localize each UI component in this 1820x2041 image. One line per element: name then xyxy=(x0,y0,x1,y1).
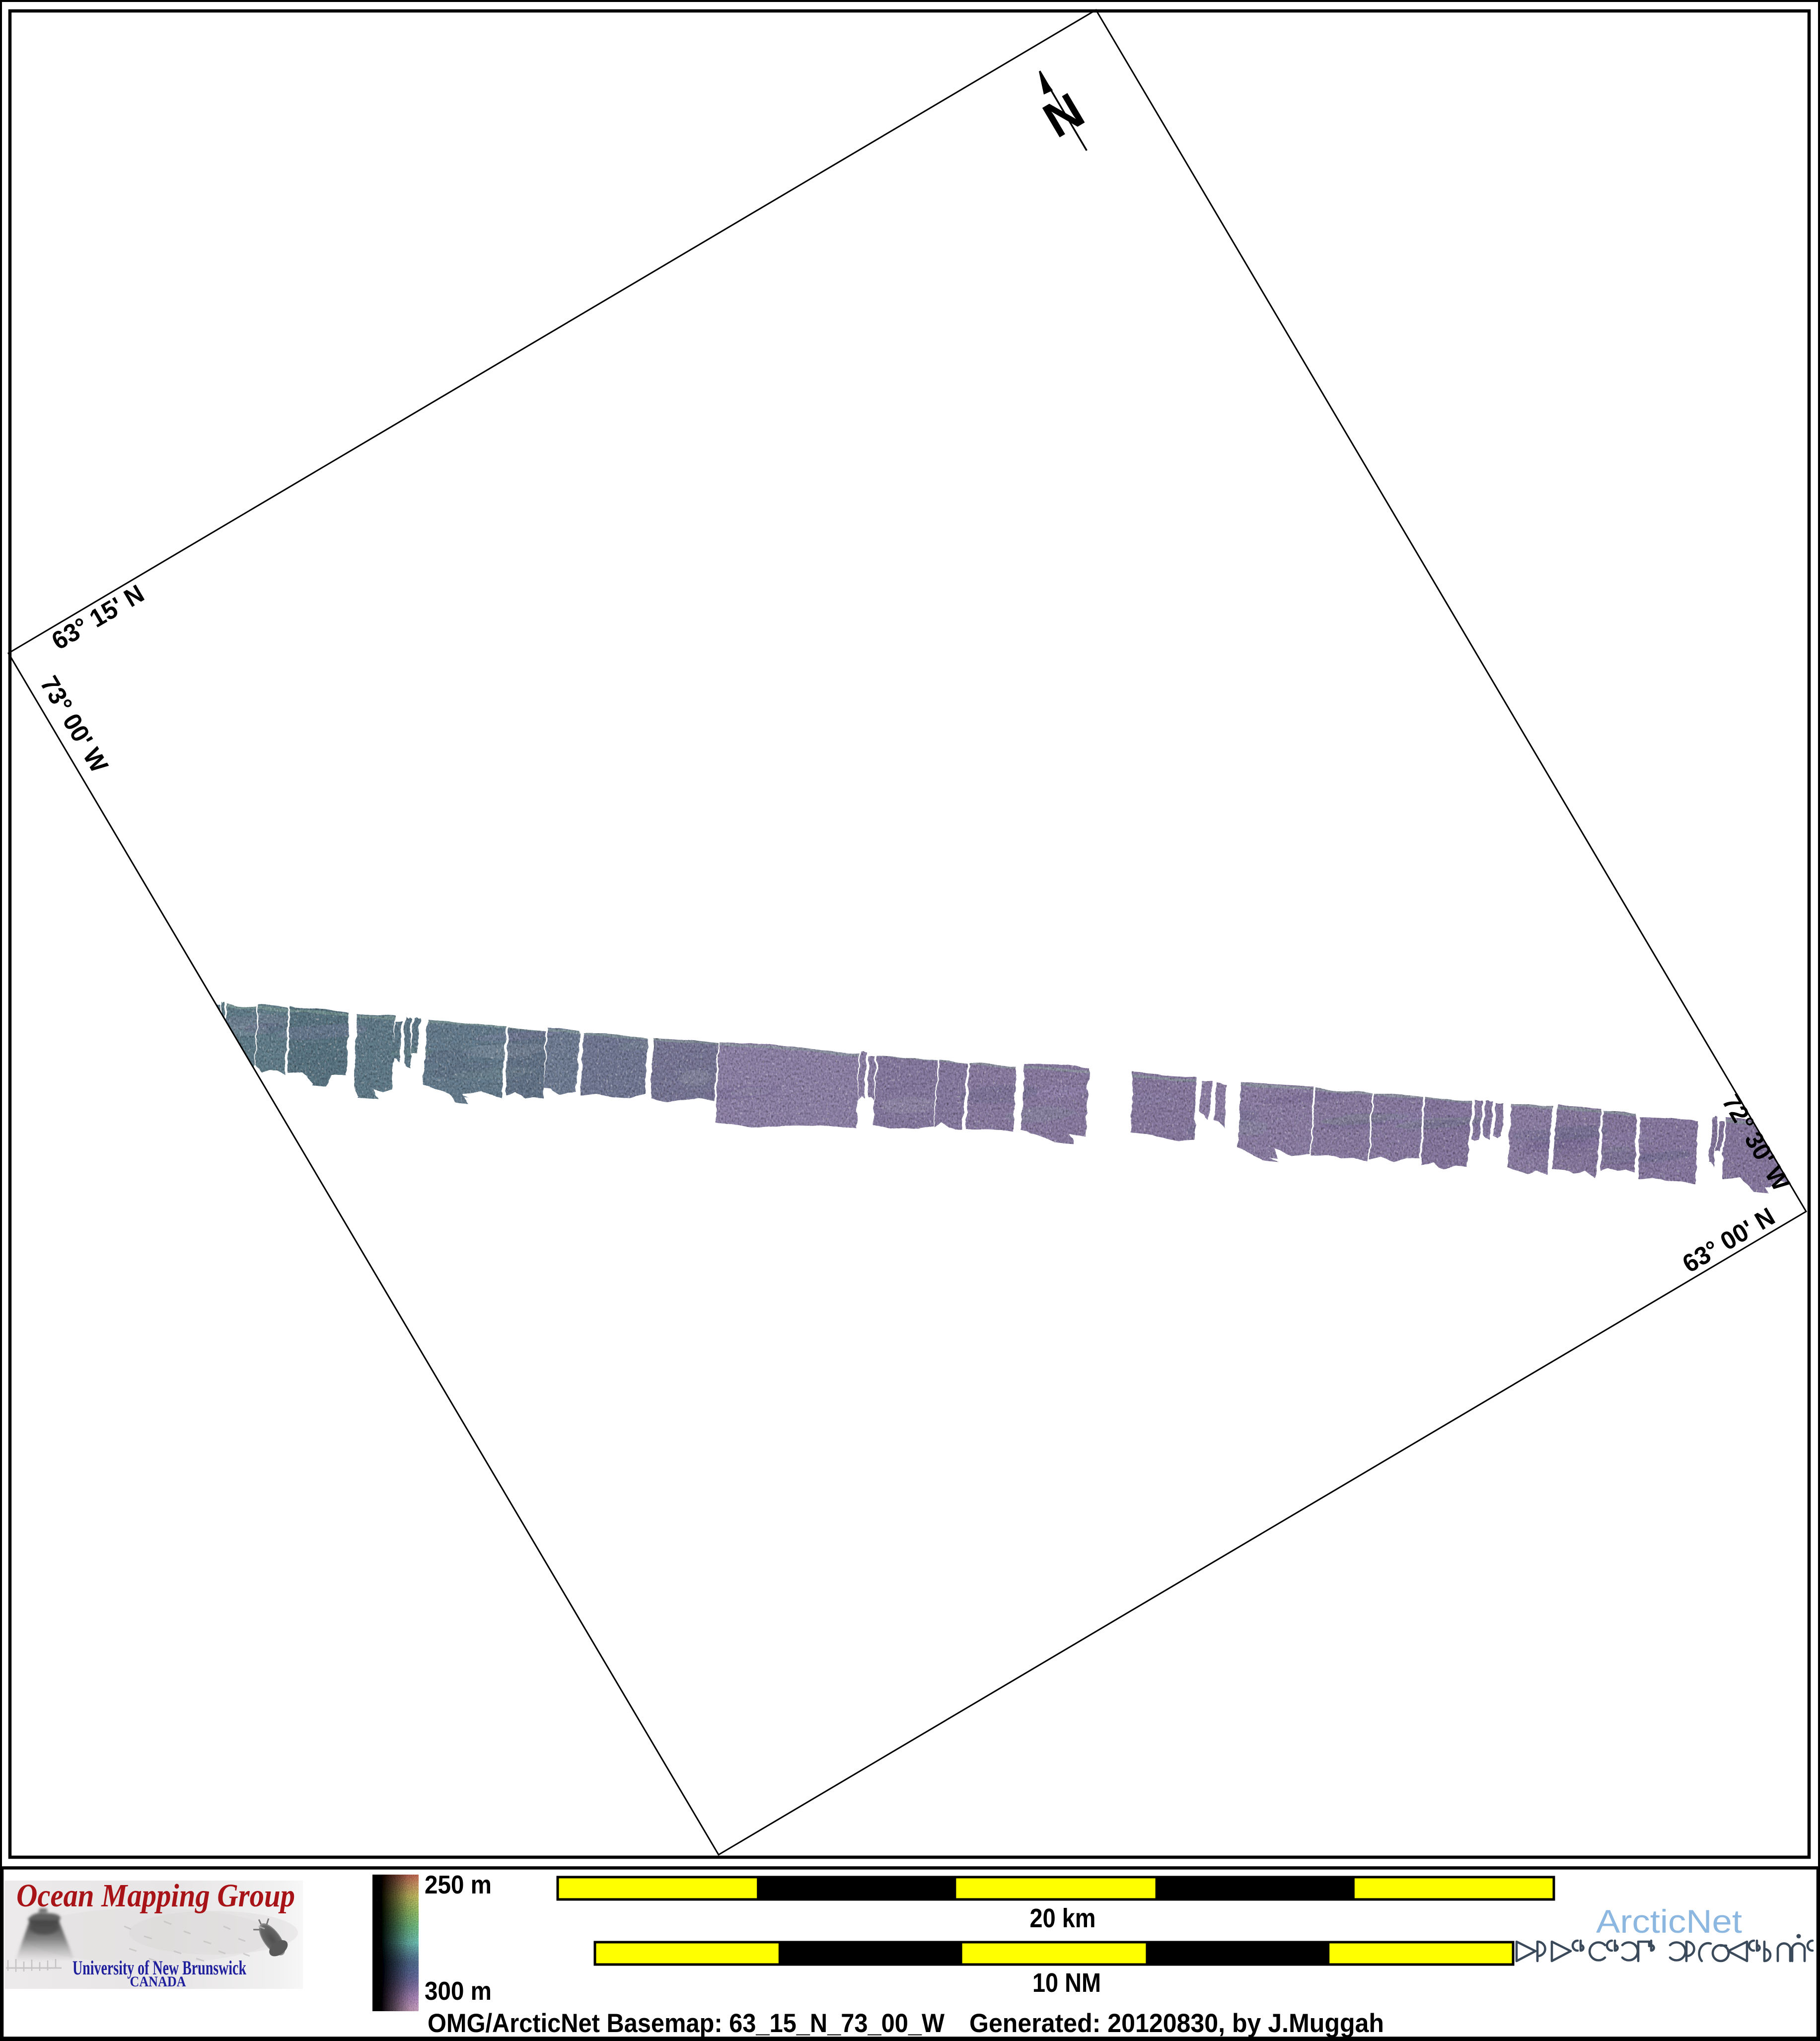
svg-text:300 m: 300 m xyxy=(425,1977,492,2006)
svg-text:250 m: 250 m xyxy=(425,1871,492,1899)
svg-text:ArcticNet: ArcticNet xyxy=(1596,1903,1742,1940)
svg-text:10 NM: 10 NM xyxy=(1032,1968,1101,1998)
svg-text:OMG/ArcticNet Basemap: 63_15_N: OMG/ArcticNet Basemap: 63_15_N_73_00_W xyxy=(428,2009,945,2038)
svg-text:20 km: 20 km xyxy=(1030,1903,1096,1933)
svg-text:Generated: 20120830, by J.Mugg: Generated: 20120830, by J.Muggah xyxy=(969,2009,1384,2038)
svg-text:Ocean Mapping Group: Ocean Mapping Group xyxy=(16,1878,295,1914)
svg-text:CANADA: CANADA xyxy=(130,1973,186,1990)
